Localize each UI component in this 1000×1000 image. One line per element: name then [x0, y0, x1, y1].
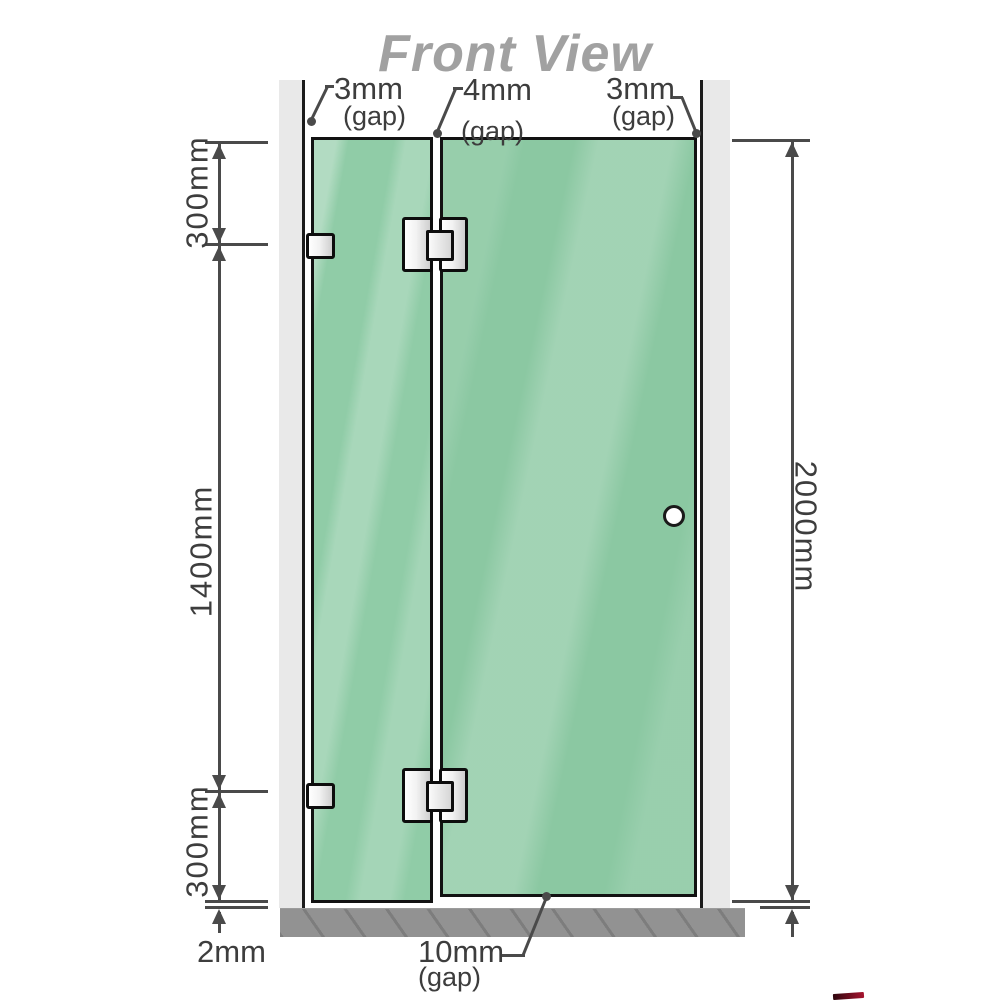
right-dim-tick-glass-bottom — [732, 900, 810, 903]
dim-arrow — [785, 885, 799, 900]
leader-line — [453, 87, 463, 90]
leader-line — [502, 954, 525, 957]
floor-slab — [280, 908, 745, 937]
gap-label-right-sub: (gap) — [612, 103, 675, 130]
door-knob — [663, 505, 685, 527]
dim-arrow — [785, 909, 799, 924]
dim-label-300-bottom: 300mm — [182, 784, 213, 897]
dim-arrow — [212, 909, 226, 924]
leader-line — [325, 85, 334, 88]
right-wall — [703, 80, 730, 908]
gap-label-middle-sub: (gap) — [461, 118, 524, 145]
gap-label-left-value: 3mm — [334, 73, 403, 104]
gap-label-left-sub: (gap) — [343, 103, 406, 130]
leader-dot — [692, 129, 701, 138]
left-wall — [279, 80, 302, 908]
leader-line — [310, 87, 329, 122]
dim-arrow — [785, 142, 799, 157]
leader-line — [436, 89, 457, 133]
wall-bracket-bottom — [306, 783, 335, 809]
left-wall-edge-line — [302, 80, 305, 908]
door-glass-panel — [440, 137, 697, 897]
hinge-top-knuckle — [426, 230, 454, 261]
left-dim-tick-glass-bottom — [205, 900, 268, 903]
gap-label-bottom-sub: (gap) — [418, 964, 481, 991]
dim-label-2mm: 2mm — [197, 936, 266, 967]
gap-label-middle-value: 4mm — [463, 74, 532, 105]
brand-mark — [833, 992, 864, 1000]
front-view-diagram: Front View 300mm 1400mm 300mm 2mm 2000m — [0, 0, 1000, 1000]
wall-bracket-top — [306, 233, 335, 259]
dim-label-1400: 1400mm — [186, 485, 217, 618]
dim-label-300-top: 300mm — [182, 135, 213, 248]
dim-label-2000: 2000mm — [791, 461, 822, 594]
gap-label-right-value: 3mm — [606, 73, 675, 104]
hinge-bottom-knuckle — [426, 781, 454, 812]
